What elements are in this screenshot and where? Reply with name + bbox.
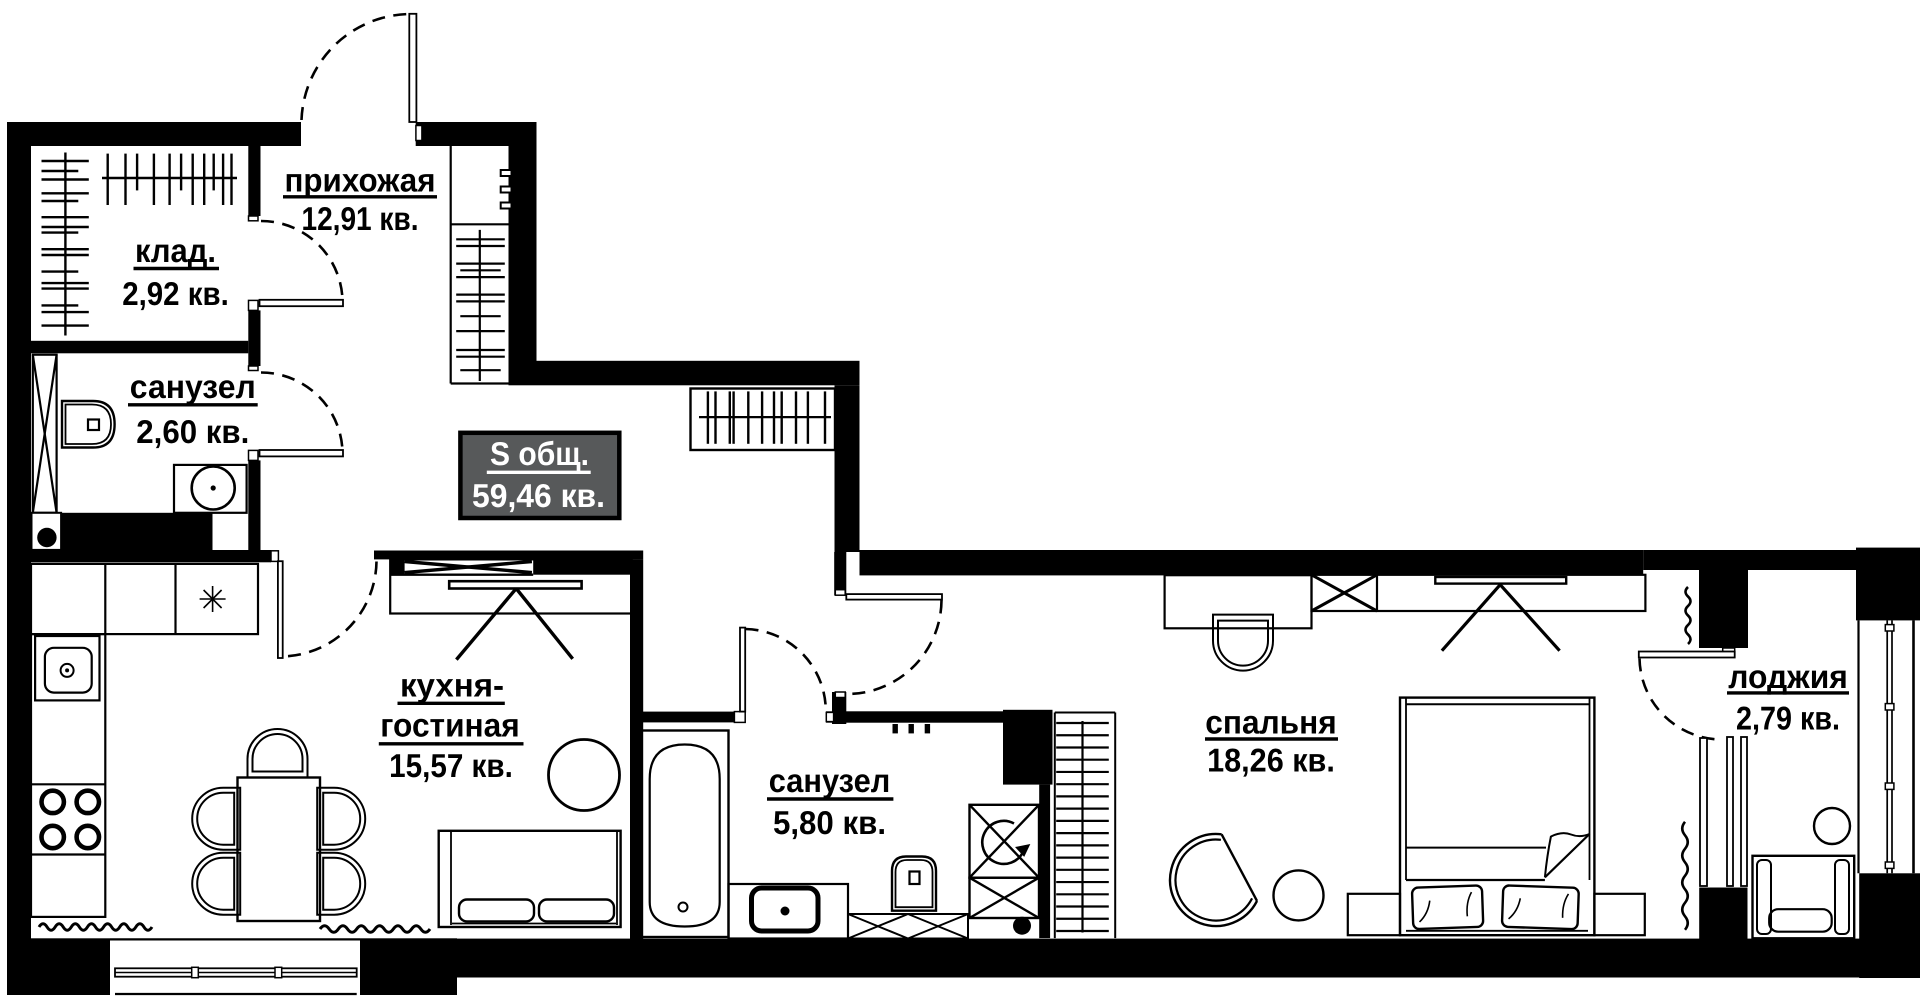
svg-text:клад.: клад. bbox=[135, 232, 216, 269]
svg-text:санузел: санузел bbox=[769, 762, 891, 799]
svg-text:2,79 кв.: 2,79 кв. bbox=[1736, 700, 1840, 737]
svg-text:гостиная: гостиная bbox=[380, 706, 520, 743]
svg-text:5,80 кв.: 5,80 кв. bbox=[773, 804, 886, 841]
svg-text:спальня: спальня bbox=[1205, 704, 1336, 741]
svg-text:12,91 кв.: 12,91 кв. bbox=[302, 200, 419, 237]
svg-text:прихожая: прихожая bbox=[285, 162, 436, 199]
svg-text:S общ.: S общ. bbox=[490, 435, 589, 472]
svg-text:2,92 кв.: 2,92 кв. bbox=[122, 275, 229, 312]
svg-text:2,60 кв.: 2,60 кв. bbox=[136, 413, 249, 450]
svg-text:лоджия: лоджия bbox=[1728, 658, 1848, 695]
svg-text:59,46 кв.: 59,46 кв. bbox=[472, 477, 605, 514]
svg-text:санузел: санузел bbox=[130, 368, 256, 405]
svg-text:15,57 кв.: 15,57 кв. bbox=[389, 747, 513, 784]
svg-text:кухня-: кухня- bbox=[400, 667, 504, 704]
svg-text:18,26 кв.: 18,26 кв. bbox=[1207, 741, 1335, 778]
